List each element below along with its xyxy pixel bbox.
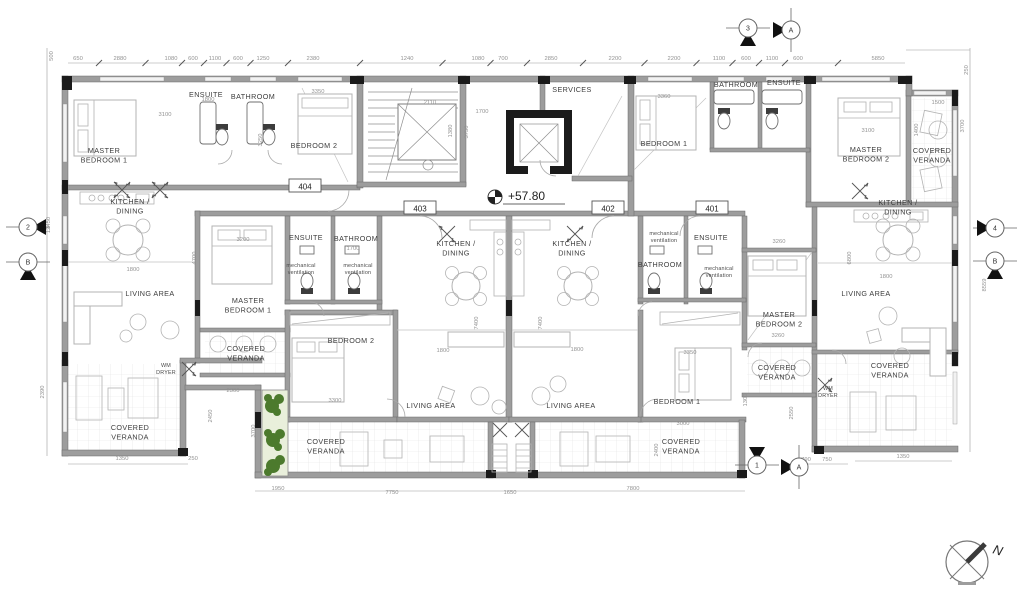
- room-label: COVEREDVERANDA: [111, 423, 149, 442]
- room-label: BATHROOM: [638, 260, 682, 269]
- room-label: LIVING AREA: [125, 289, 174, 298]
- section-marker: B: [973, 252, 1017, 279]
- dimension-label: 3100: [862, 128, 875, 134]
- toilet: [718, 108, 730, 129]
- dimension-label: 3000: [677, 421, 690, 427]
- dimension-label: 6800: [847, 252, 853, 265]
- section-marker: 3: [726, 19, 770, 46]
- room-label: COVEREDVERANDA: [307, 437, 345, 456]
- toilet: [301, 273, 313, 294]
- sofa: [514, 332, 570, 405]
- dimension-label: 1800: [437, 348, 450, 354]
- section-marker-label: 1: [755, 463, 759, 470]
- dimension-label: 2200: [668, 56, 681, 62]
- small-label: mechanicalventilation: [704, 266, 733, 279]
- dimension-label: 3300: [329, 398, 342, 404]
- bed: [748, 256, 806, 316]
- dimension-label: 1300: [743, 394, 749, 407]
- section-marker-label: B: [26, 260, 31, 267]
- section-marker-label: 4: [993, 226, 997, 233]
- toilet: [216, 124, 228, 145]
- dining-table: [558, 267, 599, 306]
- room-label: KITCHEN /DINING: [436, 239, 475, 258]
- dimension-label: 1240: [401, 56, 414, 62]
- north-label: N: [991, 542, 1005, 559]
- section-marker-label: 3: [746, 26, 750, 33]
- dimension-label: 7400: [538, 317, 544, 330]
- room-label: KITCHEN /DINING: [878, 198, 917, 217]
- dimension-label: 1650: [504, 490, 517, 496]
- dimension-label: 3200: [237, 237, 250, 243]
- dining-table: [106, 219, 150, 261]
- dimension-label: 1500: [932, 100, 945, 106]
- dimension-label: 2200: [609, 56, 622, 62]
- dimension-label: 2380: [307, 56, 320, 62]
- small-label: mechanicalventilation: [649, 231, 678, 244]
- room-label: SERVICES: [552, 85, 591, 94]
- dimension-label: 1380: [448, 125, 454, 138]
- dimension-label: 250: [188, 456, 198, 462]
- dimension-label: 1800: [571, 347, 584, 353]
- planter-box: [262, 390, 288, 476]
- apartment-tag: 402: [592, 201, 624, 214]
- dimension-label: 7400: [474, 317, 480, 330]
- room-label: KITCHEN /DINING: [552, 239, 591, 258]
- room-label: KITCHEN /DINING: [110, 197, 149, 216]
- dimension-label: 7800: [627, 486, 640, 492]
- dimension-label: 7750: [386, 490, 399, 496]
- section-marker: A: [781, 445, 808, 489]
- dimension-label: 1800: [880, 274, 893, 280]
- section-marker-label: A: [797, 465, 802, 472]
- room-label: LIVING AREA: [406, 401, 455, 410]
- dimension-label: 1700: [347, 246, 360, 252]
- dimension-label: 1400: [914, 124, 920, 137]
- dimension-label: 1100: [713, 56, 725, 62]
- louvre-units: [492, 444, 531, 472]
- section-marker: 2: [6, 218, 50, 236]
- room-label: ENSUITE: [767, 78, 801, 87]
- room-label: LIVING AREA: [546, 401, 595, 410]
- section-marker: B: [6, 253, 50, 280]
- room-label: BEDROOM 1: [641, 139, 688, 148]
- dimension-label: 8559: [982, 279, 988, 292]
- dimension-label: 1080: [165, 56, 178, 62]
- dimension-label: 1350: [116, 456, 129, 462]
- level-marker: +57.80: [488, 189, 565, 204]
- sofa: [74, 292, 179, 344]
- room-label: MASTERBEDROOM 1: [225, 296, 272, 315]
- apartment-tag: 403: [404, 201, 436, 214]
- room-label: BEDROOM 1: [654, 397, 701, 406]
- dimension-label: 1250: [257, 56, 270, 62]
- apartment-tag: 404: [289, 179, 321, 192]
- dimension-label: 2880: [114, 56, 127, 62]
- dimension-label: 2550: [789, 407, 795, 420]
- dimension-label: 1100: [766, 56, 778, 62]
- toilet: [348, 273, 360, 294]
- dimension-label: 2300: [227, 388, 240, 394]
- dimension-label: 1950: [272, 486, 285, 492]
- north-arrow-icon: N: [946, 541, 1005, 585]
- dimension-label: 4700: [192, 252, 198, 265]
- dimension-label: 1700: [476, 109, 489, 115]
- room-label: COVEREDVERANDA: [913, 146, 951, 165]
- floor-plan-drawing: 6502880108060011006001250238012401080700…: [0, 0, 1024, 590]
- dimension-label: 650: [73, 56, 83, 62]
- apartment-tag-label: 402: [601, 205, 615, 214]
- elevator: [506, 110, 572, 174]
- section-marker-label: 2: [26, 225, 30, 232]
- dimension-label: 750: [822, 457, 832, 463]
- dimension-label: 3350: [312, 89, 325, 95]
- dimension-label: 2450: [208, 410, 214, 423]
- dimension-label: 3700: [251, 425, 257, 438]
- dimension-label: 3350: [684, 350, 697, 356]
- apartment-tag-label: 404: [298, 183, 312, 192]
- dimension-label: 1800: [127, 267, 140, 273]
- dining-table: [876, 219, 920, 261]
- dimension-label: 12450: [46, 217, 52, 233]
- kitchen-counter: [512, 220, 550, 296]
- bed: [292, 338, 344, 402]
- dimension-label: 2850: [545, 56, 558, 62]
- dimension-label: 600: [741, 56, 751, 62]
- room-label: ENSUITE: [189, 90, 223, 99]
- toilet: [648, 273, 660, 294]
- small-label: mechanicalventilation: [343, 263, 372, 276]
- dimension-label: 250: [964, 65, 970, 75]
- dimension-label: 2110: [424, 100, 436, 106]
- apartment-tag-label: 401: [705, 205, 719, 214]
- staircase: [368, 88, 458, 180]
- room-label: COVEREDVERANDA: [227, 344, 265, 363]
- elevation-label: +57.80: [508, 189, 545, 203]
- small-label: mechanicalventilation: [286, 263, 315, 276]
- dimension-label: 500: [49, 51, 55, 61]
- room-label: COVEREDVERANDA: [662, 437, 700, 456]
- room-label: COVEREDVERANDA: [758, 363, 796, 382]
- room-label: LIVING AREA: [841, 289, 890, 298]
- apartment-tag-label: 403: [413, 205, 427, 214]
- dimension-label: 1080: [472, 56, 485, 62]
- room-label: BATHROOM: [231, 92, 275, 101]
- section-marker: 4: [973, 219, 1017, 237]
- room-label: ENSUITE: [289, 233, 323, 242]
- room-label: BATHROOM: [714, 80, 758, 89]
- section-marker: A: [773, 8, 800, 52]
- dining-table: [446, 267, 487, 306]
- dimension-label: 3360: [658, 94, 671, 100]
- dimension-label: 600: [188, 56, 198, 62]
- dimension-label: 600: [233, 56, 243, 62]
- floor-plan-sheet: 6502880108060011006001250238012401080700…: [0, 0, 1024, 590]
- dimension-label: 2390: [40, 386, 46, 399]
- dimension-label: 3260: [772, 333, 785, 339]
- room-label: BEDROOM 2: [328, 336, 375, 345]
- room-label: COVEREDVERANDA: [871, 361, 909, 380]
- dimension-label: 3750: [464, 126, 470, 139]
- room-label: BEDROOM 2: [291, 141, 338, 150]
- dimension-label: 1100: [209, 56, 221, 62]
- section-marker-label: A: [789, 28, 794, 35]
- dimension-label: 5850: [872, 56, 885, 62]
- apartment-tag: 401: [696, 201, 728, 214]
- toilet: [766, 108, 778, 129]
- dimension-label: 600: [793, 56, 803, 62]
- room-label: BATHROOM: [334, 234, 378, 243]
- dimension-label: 700: [498, 56, 508, 62]
- dimension-label: 2400: [654, 444, 660, 457]
- dimension-label: 1350: [897, 454, 910, 460]
- section-marker-label: B: [993, 259, 998, 266]
- toilet: [263, 124, 275, 145]
- dimension-label: 3100: [159, 112, 172, 118]
- dimension-label: 3260: [773, 239, 786, 245]
- dimension-label: 3700: [960, 120, 966, 133]
- bed: [212, 226, 272, 284]
- room-label: ENSUITE: [694, 233, 728, 242]
- dimension-label: 3250: [258, 134, 264, 147]
